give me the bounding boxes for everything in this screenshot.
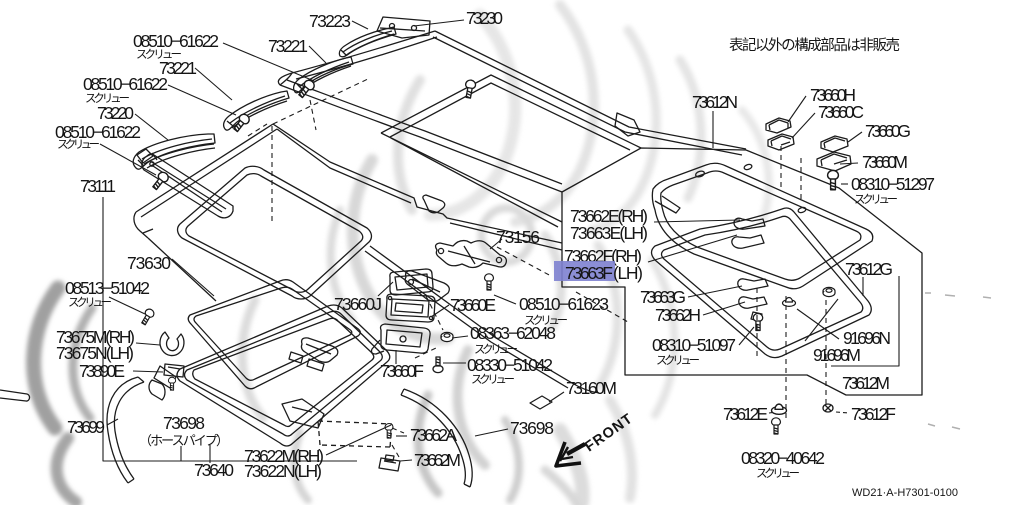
- svg-text:73221: 73221: [268, 36, 308, 56]
- svg-text:08513−51042: 08513−51042: [65, 278, 150, 298]
- svg-text:73662A: 73662A: [410, 425, 457, 445]
- svg-text:73663G: 73663G: [640, 287, 686, 307]
- svg-text:スクリュー: スクリュー: [756, 467, 800, 480]
- svg-text:スクリュー: スクリュー: [85, 92, 130, 105]
- svg-text:73660E: 73660E: [450, 295, 496, 315]
- svg-text:スクリュー: スクリュー: [524, 314, 568, 327]
- svg-text:73156: 73156: [496, 227, 540, 247]
- svg-text:スクリュー: スクリュー: [57, 138, 100, 151]
- svg-text:73223: 73223: [309, 11, 351, 31]
- svg-text:スクリュー: スクリュー: [854, 193, 898, 206]
- svg-text:73698: 73698: [163, 413, 205, 433]
- svg-text:91696M: 91696M: [813, 345, 861, 365]
- svg-text:スクリュー: スクリュー: [136, 48, 182, 61]
- svg-text:73230: 73230: [466, 8, 503, 28]
- svg-text:73699: 73699: [67, 417, 105, 437]
- svg-text:08310−51297: 08310−51297: [851, 174, 935, 194]
- svg-text:08510−61622: 08510−61622: [133, 31, 219, 51]
- svg-text:73612G: 73612G: [845, 259, 893, 279]
- svg-text:73612E: 73612E: [723, 404, 768, 424]
- svg-text:73622N(LH): 73622N(LH): [244, 461, 322, 481]
- svg-text:73220: 73220: [97, 103, 134, 123]
- svg-text:73675N(LH): 73675N(LH): [56, 343, 134, 363]
- svg-text:表記以外の構成部品は非販売: 表記以外の構成部品は非販売: [729, 37, 900, 54]
- svg-text:スクリュー: スクリュー: [474, 343, 518, 356]
- svg-text:73890E: 73890E: [79, 361, 125, 381]
- svg-text:73612N: 73612N: [692, 92, 738, 112]
- svg-text:73663F: 73663F: [565, 263, 613, 283]
- svg-text:73660F: 73660F: [380, 361, 424, 381]
- svg-text:73662M: 73662M: [414, 450, 461, 470]
- svg-text:（ホースパイプ）: （ホースパイプ）: [139, 433, 229, 448]
- svg-text:73160M: 73160M: [566, 378, 617, 398]
- svg-text:73612M: 73612M: [842, 373, 890, 393]
- svg-text:08320−40642: 08320−40642: [741, 448, 825, 468]
- svg-text:73660C: 73660C: [818, 102, 864, 122]
- svg-text:73111: 73111: [80, 176, 116, 196]
- svg-text:73698: 73698: [510, 418, 554, 438]
- svg-text:スクリュー: スクリュー: [656, 354, 700, 367]
- svg-text:08510−61623: 08510−61623: [519, 294, 609, 314]
- svg-text:73660J: 73660J: [334, 294, 382, 314]
- svg-text:73612F: 73612F: [851, 404, 896, 424]
- svg-text:73660M: 73660M: [862, 152, 908, 172]
- svg-text:(LH): (LH): [613, 263, 643, 283]
- svg-text:73630: 73630: [127, 253, 171, 273]
- svg-text:73640: 73640: [194, 460, 234, 480]
- svg-text:73662H: 73662H: [655, 305, 701, 325]
- svg-text:08310−51097: 08310−51097: [652, 335, 736, 355]
- svg-text:スクリュー: スクリュー: [68, 296, 112, 309]
- svg-text:73663E(LH): 73663E(LH): [570, 223, 648, 243]
- svg-text:73660G: 73660G: [865, 121, 911, 141]
- svg-text:WD21·A-H7301-0100: WD21·A-H7301-0100: [852, 487, 958, 499]
- svg-text:スクリュー: スクリュー: [471, 373, 515, 386]
- svg-text:08510−61622: 08510−61622: [83, 74, 168, 94]
- svg-text:08330−51042: 08330−51042: [467, 355, 553, 375]
